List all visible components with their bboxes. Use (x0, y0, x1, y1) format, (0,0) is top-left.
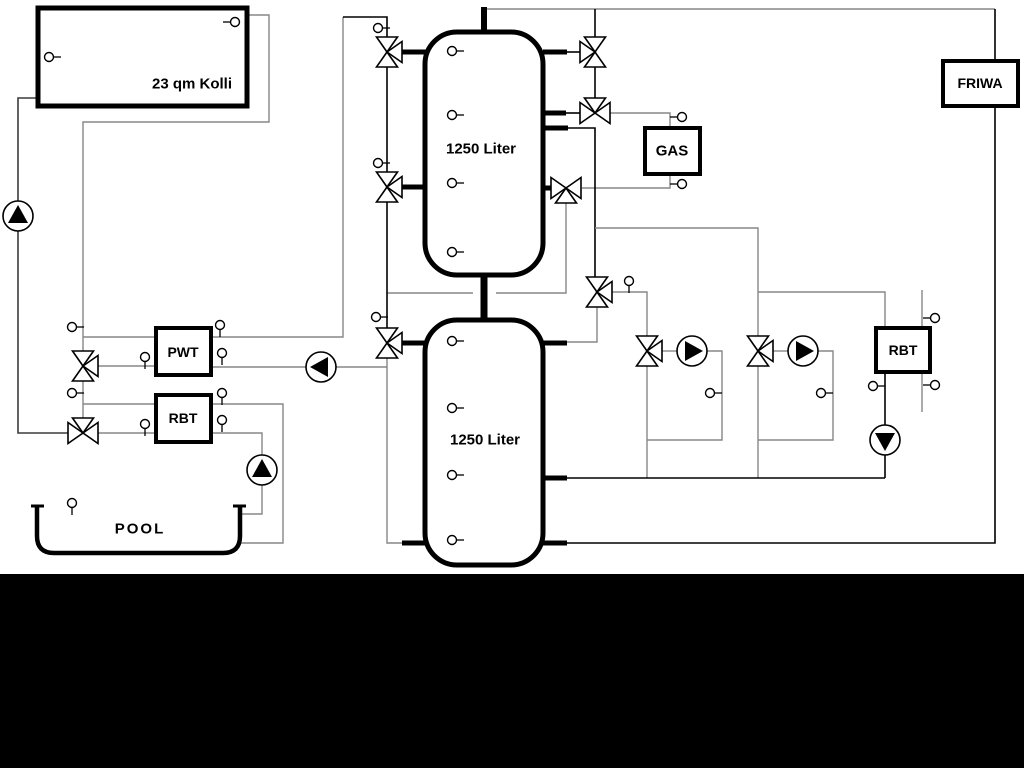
sensor-icon (45, 53, 54, 62)
sensor-icon (448, 248, 457, 257)
schematic-canvas: 23 qm Kolli 1250 Liter 1250 Liter GAS FR… (0, 0, 1024, 768)
sensor-icon (448, 47, 457, 56)
sensor-icon (448, 179, 457, 188)
lower-tank-label: 1250 Liter (450, 433, 520, 448)
sensor-icon (706, 389, 715, 398)
sensor-icon (218, 416, 227, 425)
rbt-left-label: RBT (169, 411, 198, 425)
sensor-icon (231, 18, 240, 27)
pool-label: POOL (115, 522, 166, 537)
rbt-right-label: RBT (889, 343, 918, 357)
sensor-icon (931, 314, 940, 323)
sensor-icon (141, 420, 150, 429)
sensor-icon (68, 323, 77, 332)
sensor-icon (372, 313, 381, 322)
gas-boiler-label: GAS (656, 144, 689, 159)
pipe (567, 307, 597, 342)
bottom-mask (0, 574, 1024, 768)
sensor-icon (931, 381, 940, 390)
upper-tank-label: 1250 Liter (446, 142, 516, 157)
pipe (758, 292, 885, 328)
pipe (211, 433, 262, 455)
pipe (612, 292, 647, 336)
pipe (18, 98, 38, 201)
sensor-icon (448, 111, 457, 120)
friwa-label: FRIWA (957, 76, 1002, 90)
sensor-icon (374, 24, 383, 33)
pipe (610, 113, 670, 128)
pipe (595, 228, 758, 292)
sensor-icon (448, 404, 457, 413)
sensor-icon (216, 321, 225, 330)
sensor-icon (678, 180, 687, 189)
sensor-icon (218, 349, 227, 358)
pwt-label: PWT (167, 345, 198, 359)
sensor-icon (448, 471, 457, 480)
sensor-icon (817, 389, 826, 398)
sensor-icon (218, 389, 227, 398)
sensor-icon (678, 113, 687, 122)
sensor-icon (448, 337, 457, 346)
collector-label: 23 qm Kolli (152, 77, 232, 92)
sensor-icon (869, 382, 878, 391)
sensor-icon (141, 353, 150, 362)
sensor-icon (68, 389, 77, 398)
pipe (387, 358, 402, 543)
sensor-icon (448, 536, 457, 545)
sensor-icon (374, 159, 383, 168)
pipe (240, 485, 262, 514)
sensor-icon (68, 499, 77, 508)
pipe (567, 9, 995, 543)
sensor-icon (625, 277, 634, 286)
pipe (18, 231, 68, 433)
